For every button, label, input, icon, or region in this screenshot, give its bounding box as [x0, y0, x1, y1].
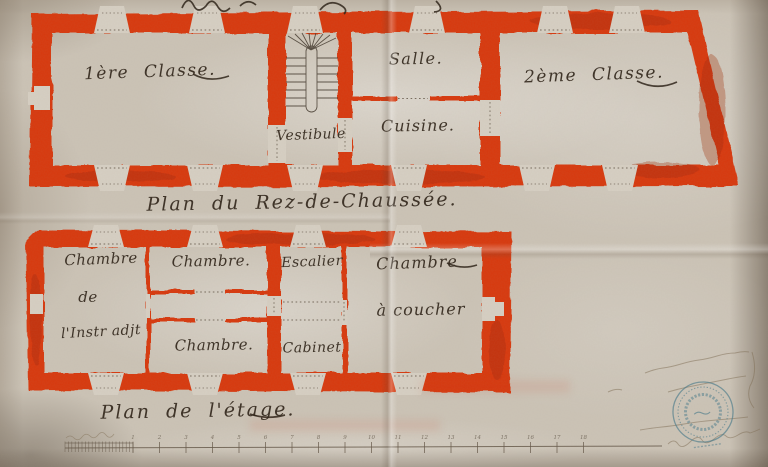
svg-text:12: 12	[421, 435, 428, 441]
room-label-chambre-inst-line2: de	[78, 288, 97, 306]
svg-text:4: 4	[210, 435, 215, 441]
room-label-vestibule: Vestibule	[276, 126, 346, 144]
svg-text:3: 3	[184, 435, 188, 441]
svg-text:8: 8	[317, 435, 321, 441]
scale-bar: 123456789101112131415161718	[65, 435, 662, 453]
room-label-cabinet: Cabinet	[282, 339, 341, 356]
svg-text:18: 18	[580, 435, 587, 441]
svg-text:1: 1	[131, 435, 135, 441]
svg-text:5: 5	[237, 435, 241, 441]
svg-text:10: 10	[368, 435, 375, 441]
svg-text:9: 9	[343, 435, 347, 441]
svg-text:6: 6	[264, 435, 268, 441]
svg-text:11: 11	[395, 435, 402, 441]
illegible-handwriting	[66, 352, 760, 447]
svg-text:14: 14	[474, 435, 481, 441]
svg-text:17: 17	[554, 435, 561, 441]
room-label-chambre-bottom: Chambre.	[174, 335, 253, 354]
staircase-drawing	[286, 33, 338, 112]
svg-text:13: 13	[448, 435, 455, 441]
svg-text:7: 7	[290, 435, 294, 441]
room-label-chambre-top: Chambre.	[171, 251, 250, 270]
svg-text:15: 15	[501, 435, 508, 441]
room-label-chambre-inst-line1: Chambre	[64, 249, 138, 270]
svg-text:16: 16	[527, 435, 534, 441]
caption-etage: Plan de l'étage.	[100, 398, 295, 423]
room-label-escalier: Escalier	[281, 253, 343, 271]
svg-text:2: 2	[157, 435, 162, 441]
room-label-cuisine: Cuisine.	[381, 115, 455, 135]
room-label-chambre-coucher-line2: à coucher	[376, 299, 465, 320]
room-label-salle: Salle.	[389, 49, 444, 69]
plan-sheet: 123456789101112131415161718 1ère Classe.…	[0, 0, 768, 467]
room-label-chambre-coucher-line1: Chambre	[376, 252, 458, 274]
